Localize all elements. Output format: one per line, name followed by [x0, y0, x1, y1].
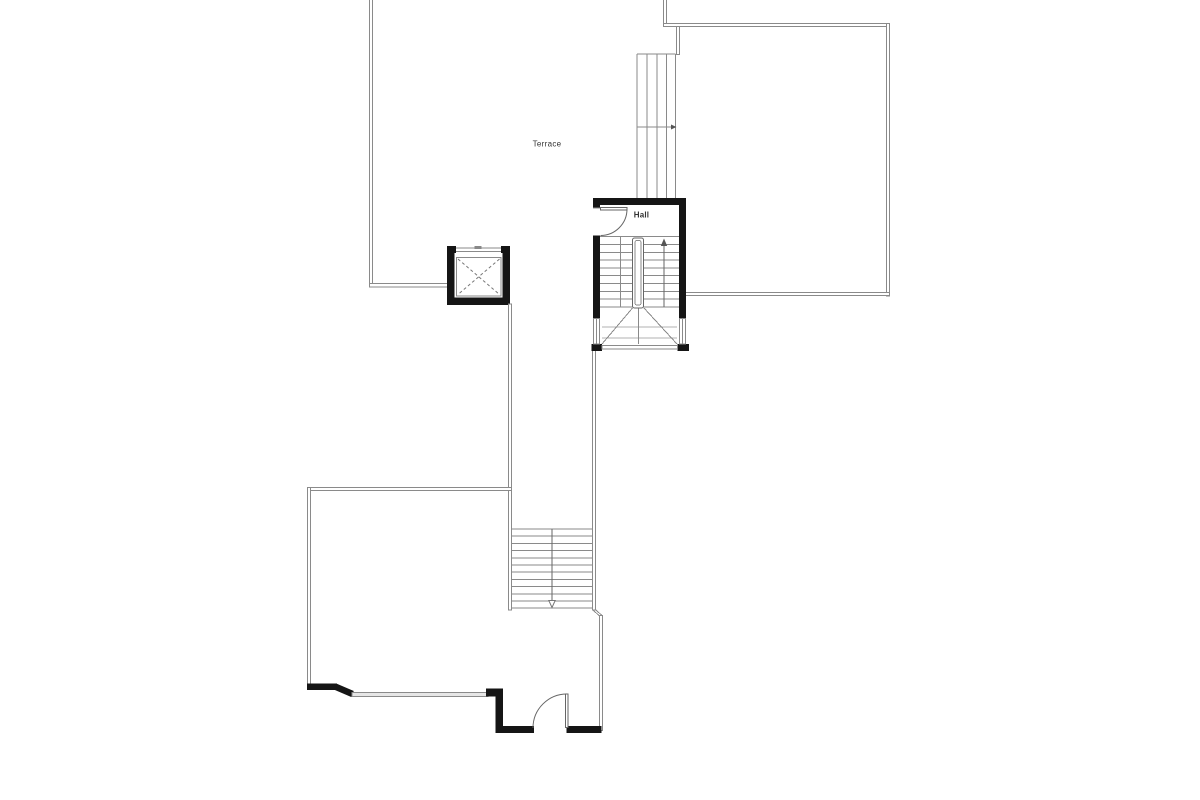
elevator-door-tick [475, 246, 482, 249]
corridor-wall-left [509, 304, 512, 610]
hall-corner-bottom-left [592, 344, 603, 351]
upper-right-room-wall-right [887, 24, 890, 297]
floor-plan-canvas: Terrace [0, 0, 1200, 800]
hall-door-jambs [593, 208, 600, 236]
entry-door-swing-arc [533, 694, 567, 728]
entry-wall-left [496, 726, 535, 733]
terrace-wall-bottom [370, 284, 448, 288]
corridor-wall-right [593, 351, 596, 611]
upper-right-room-wall-bottom [686, 293, 890, 296]
hall-label: Hall [634, 211, 649, 220]
exterior-stair-strip [637, 54, 677, 198]
hall-door-swing-arc [601, 209, 628, 236]
upper-right-room-wall-stub [664, 0, 667, 26]
hall-wall-top [593, 198, 686, 205]
exterior-stair-lines [637, 54, 676, 198]
winder-diagonals [602, 308, 677, 344]
lower-room-wall-top [308, 488, 512, 491]
upper-right-room-wall-connector [677, 27, 680, 55]
elevator [447, 246, 510, 305]
hall-bottom-edge [602, 346, 678, 350]
floor-plan-page: Terrace [0, 0, 1200, 800]
stair-center-rail [633, 238, 644, 308]
entry-wall-right [567, 726, 602, 733]
elevator-wall-right [503, 246, 511, 305]
hall-wall-right [679, 205, 686, 318]
lower-left-room [307, 488, 512, 731]
lower-room-wall-bottom-left [307, 684, 337, 691]
lower-room-glazed-wall [352, 693, 488, 697]
hall-stairwell: Hall [592, 198, 690, 351]
upper-right-room [664, 0, 890, 296]
lower-stair [512, 529, 593, 608]
terrace-label: Terrace [533, 140, 562, 149]
lower-room-corner-wall-v [496, 694, 504, 730]
elevator-corner-top-left [447, 246, 456, 253]
lower-right-room [496, 610, 604, 733]
hall-wall-left [593, 236, 600, 319]
entry-door-leaf [566, 694, 569, 728]
lower-room-wall-angled [335, 687, 353, 695]
elevator-x-marks [458, 259, 500, 295]
elevator-wall-bottom [447, 298, 510, 306]
terrace-wall-left [370, 0, 373, 287]
elevator-corner-top-right [501, 246, 510, 253]
hall-door-leaf [601, 208, 628, 211]
upper-right-room-wall-top [664, 24, 890, 27]
lower-room-wall-left [308, 488, 311, 686]
stair-down-arrow-icon [549, 601, 555, 608]
hall-corner-bottom-right [678, 344, 690, 351]
lower-room-wall-right [600, 616, 603, 731]
winder-tread-lines [602, 327, 677, 338]
stair-up-arrow-icon [661, 239, 667, 247]
terrace: Terrace [370, 0, 562, 287]
elevator-wall-left [447, 246, 455, 305]
